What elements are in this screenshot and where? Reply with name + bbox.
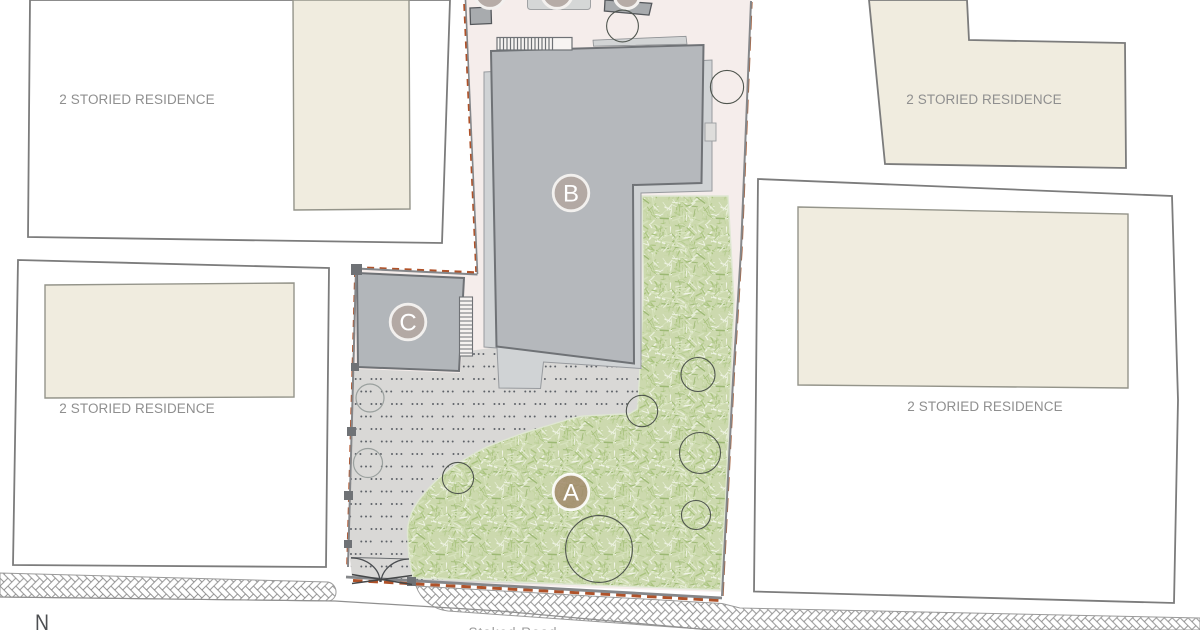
svg-text:2 STORIED RESIDENCE: 2 STORIED RESIDENCE (59, 401, 214, 416)
svg-text:A: A (563, 480, 579, 507)
svg-text:2 STORIED RESIDENCE: 2 STORIED RESIDENCE (59, 92, 214, 107)
svg-text:N: N (35, 610, 49, 630)
svg-text:C: C (399, 310, 416, 337)
svg-text:Staked Road: Staked Road (468, 625, 557, 630)
svg-text:B: B (563, 181, 579, 208)
svg-text:2 STORIED RESIDENCE: 2 STORIED RESIDENCE (907, 399, 1062, 414)
svg-text:2 STORIED RESIDENCE: 2 STORIED RESIDENCE (906, 92, 1061, 107)
